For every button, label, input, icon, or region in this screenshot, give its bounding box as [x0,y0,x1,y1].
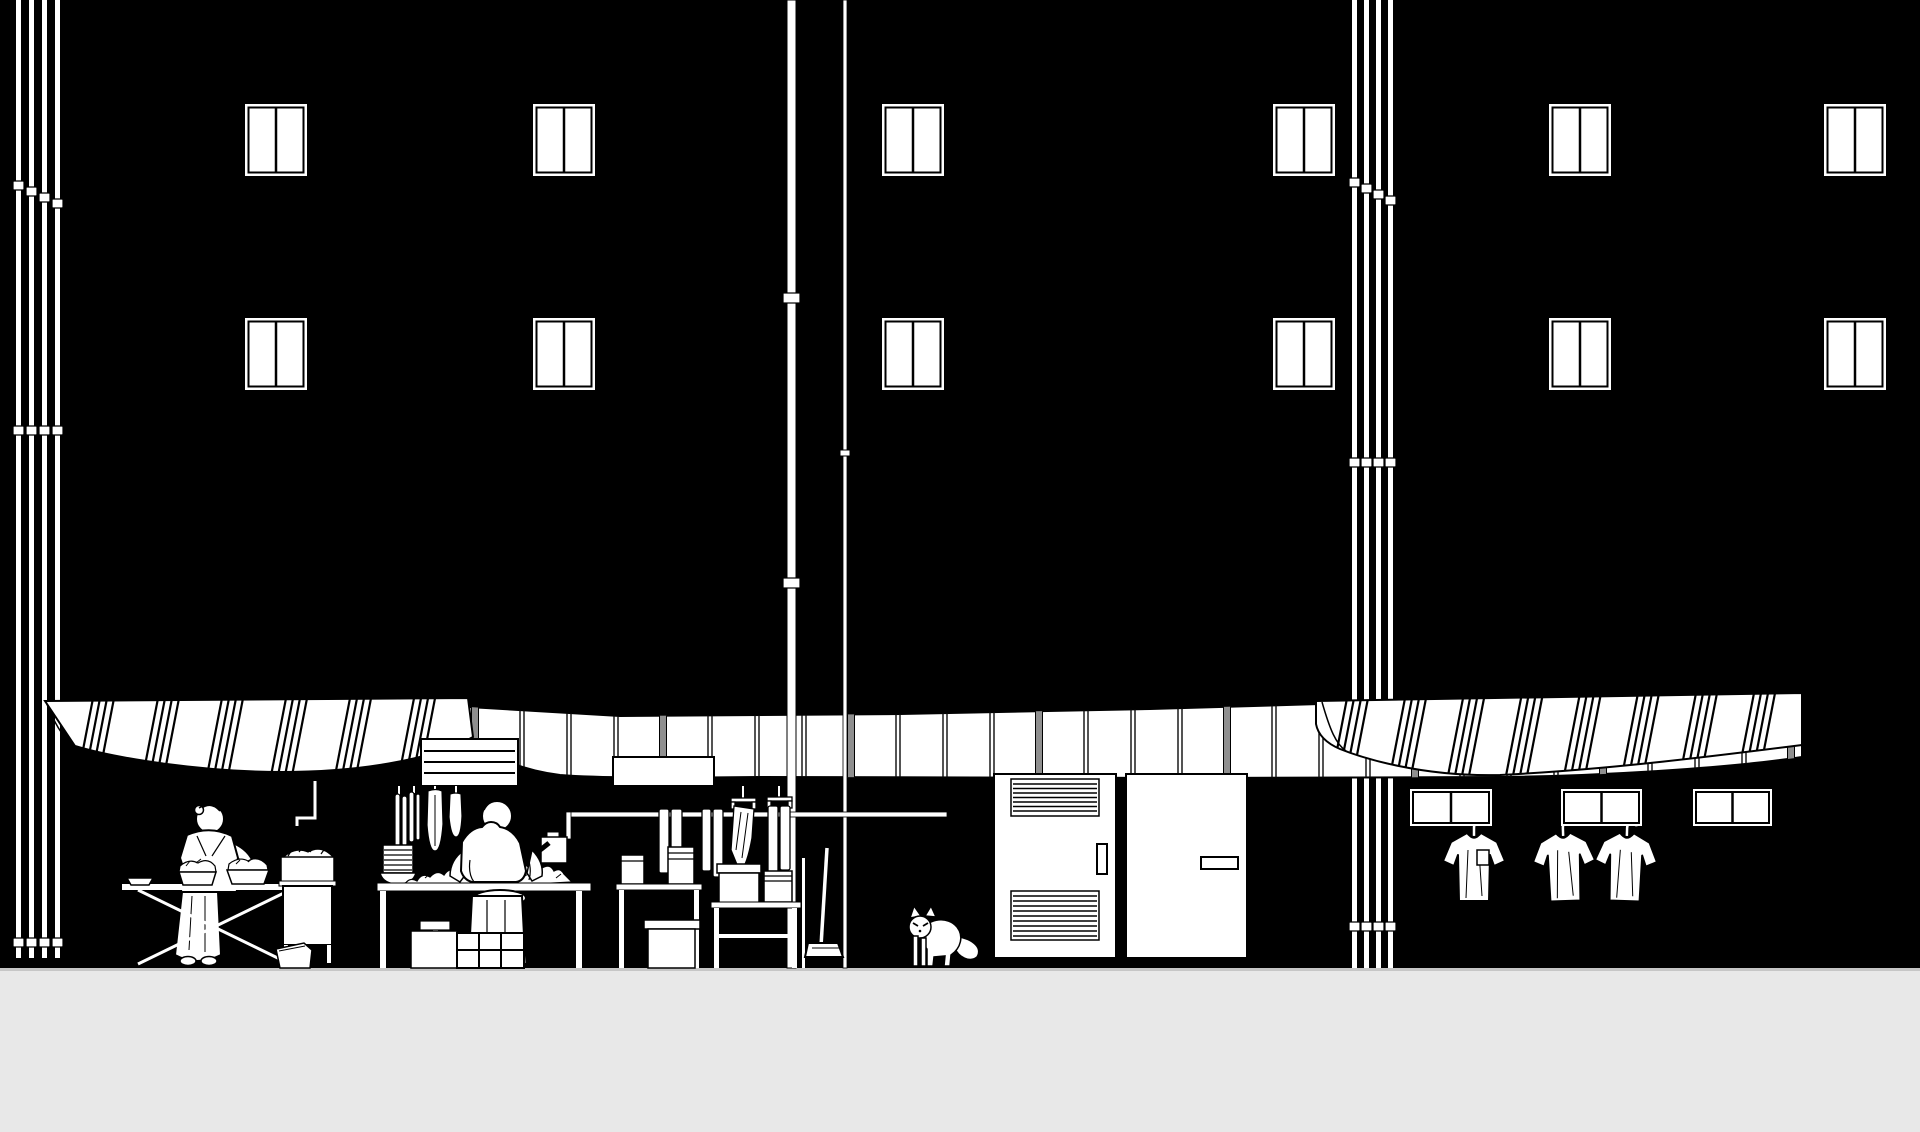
cabinet-leg [327,945,331,963]
plate-stack [380,845,416,884]
cat-head [909,916,931,938]
cat-nose [919,930,922,933]
table-top [616,884,702,890]
table-leg [619,890,624,968]
sidewalk-ground: sidewalk [0,971,1920,1132]
facade-window [1549,104,1611,176]
cabinet [283,886,332,945]
pipe-collar [1349,178,1360,187]
under-counter-cabinet [411,931,457,968]
produce-crate [281,857,334,883]
counter-leg [380,891,386,968]
facade-window [245,104,307,176]
pipe-collar [1373,458,1384,467]
foot [201,957,217,966]
door-handle [1097,844,1107,874]
pipe-collar [52,426,63,435]
transom-window [1561,789,1642,826]
tray [227,870,269,884]
pipe [42,0,47,958]
cat-front-leg [921,938,926,966]
street-elevation-scene: Black-and-white street elevation of a ni… [0,0,1920,1132]
pipe-collar [1385,458,1396,467]
pipe-collar [26,938,37,947]
pipe-collar [1361,184,1372,193]
box [719,873,759,903]
entry-door: entry door with plate [1126,774,1247,958]
facade-window [882,318,944,390]
pipe-collar [13,938,24,947]
pipe-collar [1349,458,1360,467]
pipe [16,0,21,958]
produce [228,859,268,870]
transom-window [1410,789,1492,826]
pipe-collar [1373,190,1384,199]
table-crossbar [714,934,797,938]
box [621,855,644,884]
counter-leg [576,891,582,968]
foot [180,957,196,966]
pipe-collar [52,938,63,947]
table-top [711,902,801,908]
towel [768,806,778,876]
pipe-collar [26,187,37,196]
towel [780,806,790,870]
pipe-collar [783,578,800,588]
towel [702,809,711,871]
pipe [29,0,34,958]
pipe [1388,0,1393,968]
facade-window [1273,318,1335,390]
transom-window [1693,789,1772,826]
pipe-collar [13,426,24,435]
pipe [1352,0,1357,968]
facade-window [1824,318,1886,390]
louvered-door: louvered utility door [994,774,1116,958]
rail-support-pole [802,858,805,968]
box-lid [717,864,761,873]
facade-window [1273,104,1335,176]
pipe [1364,0,1369,968]
facade-window [882,104,944,176]
facade-window [1824,104,1886,176]
clip [752,802,756,809]
pipe-collar [26,426,37,435]
cat-front-leg [913,936,918,966]
pipe-collar [1385,922,1396,931]
facade-window [1549,318,1611,390]
tray-on-stand [420,921,450,930]
sign-slatted: slatted sign board [421,739,518,786]
facade-window [533,318,595,390]
shirt-pocket [1477,850,1489,865]
transom-windows: transom windows [1410,789,1772,826]
facade-window [245,318,307,390]
tray [179,872,216,885]
pipe-collar [13,181,24,190]
pipe-collar [39,426,50,435]
pipe-collar [39,938,50,947]
pipe-collar [39,193,50,202]
standpipe [843,0,847,968]
box-lid [644,920,700,929]
pipe-collar [52,199,63,208]
pipe-collar [1373,922,1384,931]
pipe [1376,0,1381,968]
box [648,929,695,968]
pipe-collar [1385,196,1396,205]
door-plate [1201,857,1238,869]
pipe [55,0,60,958]
sign-blank: blank sign board [613,757,714,786]
counter-top [377,883,591,891]
compartment-crate [457,933,524,968]
pipe-collar [1361,922,1372,931]
pipe-collar [1349,922,1360,931]
facade-window [533,104,595,176]
pipe-collar [1361,458,1372,467]
water-tank [541,837,567,863]
dish [127,878,153,885]
pipe-collar [783,293,800,303]
pipe-collar [840,450,850,456]
